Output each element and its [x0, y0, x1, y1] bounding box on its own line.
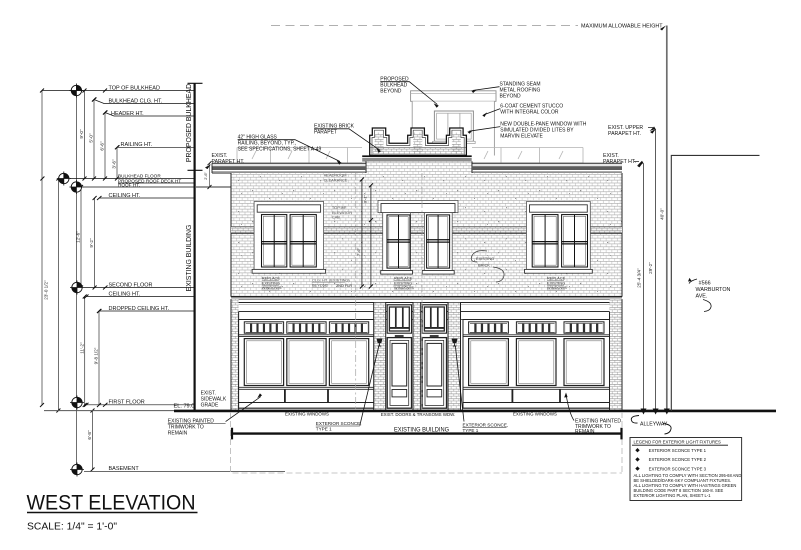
svg-text:BEYOND: BEYOND: [312, 282, 329, 287]
svg-text:EXISTING BUILDING: EXISTING BUILDING: [394, 427, 449, 434]
svg-text:MARVIN ELEVATE: MARVIN ELEVATE: [500, 134, 543, 140]
svg-text:9'-0": 9'-0": [79, 129, 84, 139]
svg-text:40'-0": 40'-0": [660, 208, 665, 220]
svg-text:EXISTING BUILDING: EXISTING BUILDING: [186, 225, 193, 292]
svg-text:DROPPED CEILING HT.: DROPPED CEILING HT.: [109, 306, 170, 312]
svg-text:MAXIMUM ALLOWABLE HEIGHT: MAXIMUM ALLOWABLE HEIGHT: [581, 24, 663, 30]
svg-text:23'-0 1/2": 23'-0 1/2": [44, 280, 49, 300]
svg-text:EXTERIOR SCONCE TYPE 3: EXTERIOR SCONCE TYPE 3: [649, 466, 707, 471]
svg-text:EXISTING WINDOWS: EXISTING WINDOWS: [285, 411, 329, 416]
svg-text:5'-0": 5'-0": [89, 133, 94, 143]
svg-text:BRICK: BRICK: [478, 262, 490, 267]
svg-text:CEILING HT.: CEILING HT.: [109, 193, 141, 199]
svg-text:BEYOND: BEYOND: [500, 94, 522, 100]
svg-text:WITH INTEGRAL COLOR: WITH INTEGRAL COLOR: [500, 110, 559, 116]
svg-text:PARAPET HT.: PARAPET HT.: [212, 159, 245, 165]
svg-text:WINDOWS: WINDOWS: [394, 285, 414, 290]
svg-text:#566: #566: [699, 281, 711, 287]
svg-text:EL. 79.0: EL. 79.0: [174, 404, 195, 410]
svg-text:CAB: CAB: [332, 215, 340, 220]
svg-text:SEE SPECIFICATIONS, SHEET A-49: SEE SPECIFICATIONS, SHEET A-49: [238, 147, 322, 153]
svg-text:7'-6": 7'-6": [356, 247, 361, 256]
svg-text:12'-6": 12'-6": [76, 231, 81, 243]
svg-text:11'-2": 11'-2": [79, 342, 84, 354]
svg-text:EXTERIOR SCONCE,: EXTERIOR SCONCE,: [463, 423, 509, 428]
svg-text:PROPOSED BULKHEAD: PROPOSED BULKHEAD: [186, 84, 193, 162]
svg-text:BEYOND: BEYOND: [380, 89, 402, 95]
svg-text:EXIST.: EXIST.: [212, 153, 228, 159]
svg-text:29'-2": 29'-2": [648, 262, 653, 274]
svg-text:EXTERIOR SCONCE,: EXTERIOR SCONCE,: [316, 421, 362, 426]
svg-text:BASEMENT: BASEMENT: [109, 466, 140, 472]
svg-text:EXISTING: EXISTING: [476, 256, 494, 261]
svg-text:9'-8 1/2": 9'-8 1/2": [94, 347, 99, 364]
svg-text:REMAIN: REMAIN: [575, 429, 595, 435]
svg-text:PARAPET: PARAPET: [314, 130, 337, 136]
svg-text:WINDOWS: WINDOWS: [262, 285, 282, 290]
svg-text:EXIST.: EXIST.: [603, 153, 619, 159]
svg-text:FIRST FLOOR: FIRST FLOOR: [109, 400, 145, 406]
svg-text:9'-2": 9'-2": [89, 238, 94, 248]
svg-text:EXTERIOR SCONCE TYPE 2: EXTERIOR SCONCE TYPE 2: [649, 457, 707, 462]
svg-text:REMAIN: REMAIN: [168, 430, 188, 436]
svg-text:EXTERIOR LIGHTING PLAN, SHEET: EXTERIOR LIGHTING PLAN, SHEET L-1: [634, 493, 712, 498]
svg-text:3'-6": 3'-6": [112, 159, 117, 169]
svg-text:HEADER HT.: HEADER HT.: [111, 111, 144, 117]
svg-text:SCALE: 1/4" = 1'-0": SCALE: 1/4" = 1'-0": [27, 522, 118, 533]
svg-text:CEILING HT.: CEILING HT.: [109, 292, 141, 298]
svg-text:PARAPET HT.: PARAPET HT.: [608, 131, 641, 137]
svg-text:EXIST. UPPER: EXIST. UPPER: [608, 125, 643, 131]
svg-text:EXIST. DOORS & TRANSOMS WDW.: EXIST. DOORS & TRANSOMS WDW.: [381, 412, 456, 417]
svg-text:BULKHEAD CLG. HT.: BULKHEAD CLG. HT.: [109, 98, 163, 104]
svg-text:RAILING HT.: RAILING HT.: [121, 142, 153, 148]
svg-text:WEST ELEVATION: WEST ELEVATION: [27, 491, 196, 515]
svg-text:SECOND FLOOR: SECOND FLOOR: [109, 283, 153, 289]
svg-text:EXISTING WINDOWS: EXISTING WINDOWS: [513, 411, 557, 416]
svg-text:TYPE 1: TYPE 1: [316, 427, 332, 432]
svg-text:LEGEND FOR EXTERIOR LIGHT FIXT: LEGEND FOR EXTERIOR LIGHT FIXTURES: [634, 439, 721, 444]
svg-text:EXTERIOR SCONCE TYPE 1: EXTERIOR SCONCE TYPE 1: [649, 448, 707, 453]
svg-text:2'-6": 2'-6": [204, 172, 208, 180]
svg-text:WARBURTON: WARBURTON: [696, 287, 731, 293]
svg-text:PARAPET HT.: PARAPET HT.: [603, 159, 636, 165]
svg-text:6'-8": 6'-8": [87, 430, 92, 440]
svg-text:TOP OF BULKHEAD: TOP OF BULKHEAD: [109, 85, 160, 91]
svg-text:ROOF HT.: ROOF HT.: [118, 182, 140, 187]
svg-text:8'-1": 8'-1": [363, 194, 368, 203]
svg-text:ALLEYWAY: ALLEYWAY: [640, 421, 668, 427]
svg-text:AVE.: AVE.: [696, 294, 708, 300]
svg-text:WINDOWS: WINDOWS: [547, 285, 567, 290]
svg-text:CLEARANCE: CLEARANCE: [324, 177, 348, 182]
svg-text:25'-4 3/4": 25'-4 3/4": [636, 268, 641, 288]
svg-text:GRADE: GRADE: [201, 403, 219, 409]
svg-text:6'-6": 6'-6": [100, 141, 105, 151]
svg-text:TYPE 1: TYPE 1: [463, 428, 479, 433]
svg-text:2ND FLR: 2ND FLR: [336, 283, 352, 288]
